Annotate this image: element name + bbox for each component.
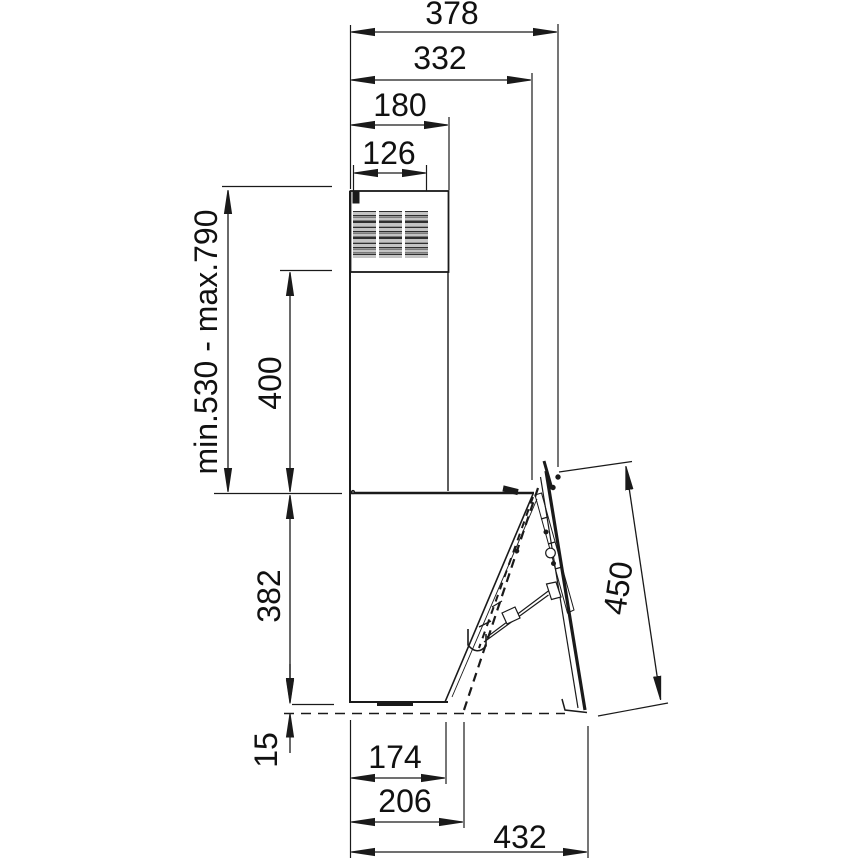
pivot-hole bbox=[546, 548, 556, 558]
dim-label-450: 450 bbox=[598, 559, 638, 617]
chimney-corner-mark bbox=[353, 192, 359, 203]
arm-slider-block bbox=[502, 607, 520, 624]
grille-column bbox=[353, 211, 376, 258]
dimension-drawing-canvas: 378 332 180 126 min.530 - max.790 400 38… bbox=[0, 0, 860, 860]
arm-pivot-bracket bbox=[547, 582, 562, 600]
dim-label-382: 382 bbox=[253, 569, 285, 622]
grille-column bbox=[379, 211, 402, 258]
small-dot bbox=[351, 490, 354, 493]
grille-column bbox=[405, 211, 428, 258]
hinge-mechanism bbox=[351, 475, 574, 713]
rivet-dot bbox=[551, 485, 555, 489]
corner-dot bbox=[556, 475, 560, 479]
dim-label-180: 180 bbox=[373, 89, 426, 121]
vent-grille bbox=[353, 211, 428, 258]
dim-label-206: 206 bbox=[378, 785, 431, 817]
dim-label-332: 332 bbox=[413, 42, 466, 74]
dim-label-400: 400 bbox=[254, 356, 286, 409]
dimension-lines bbox=[228, 32, 661, 852]
dim-label-174: 174 bbox=[368, 741, 421, 773]
rivet-dot bbox=[544, 530, 548, 534]
body-front-inner-edge bbox=[452, 499, 537, 697]
bracket-tick bbox=[479, 621, 491, 627]
hidden-edge-dashed bbox=[463, 488, 538, 713]
dim-label-126: 126 bbox=[362, 137, 415, 169]
bracket-tick bbox=[492, 601, 502, 607]
dim-label-15: 15 bbox=[250, 732, 282, 768]
dim-label-432: 432 bbox=[493, 821, 546, 853]
body-front-edge bbox=[445, 494, 533, 702]
drawing-linework bbox=[0, 0, 860, 860]
rivet-dot bbox=[515, 549, 519, 553]
rivet-dot bbox=[552, 562, 556, 566]
dim-label-height-range: min.530 - max.790 bbox=[190, 209, 222, 474]
dim-label-378: 378 bbox=[425, 0, 478, 29]
